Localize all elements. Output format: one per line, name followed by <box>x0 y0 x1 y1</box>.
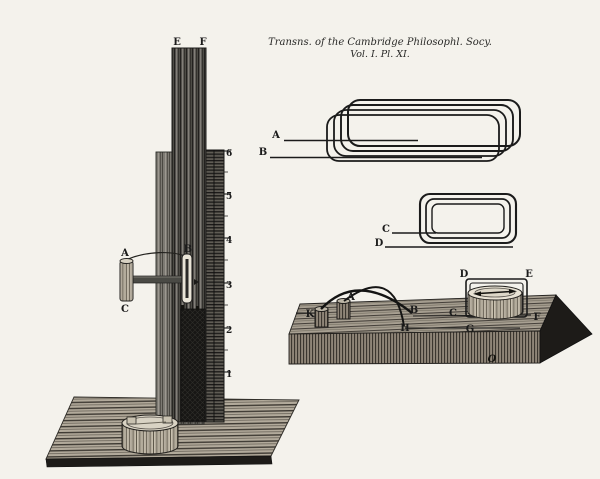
board-label-a: A <box>346 292 355 303</box>
scale-number-5: 5 <box>226 192 232 202</box>
board-label-o: O <box>488 354 497 365</box>
board-front-face <box>289 331 540 364</box>
flat-coil-label-a: A <box>271 130 280 141</box>
board-label-c: C <box>449 308 457 319</box>
glass-tube-core <box>186 259 189 298</box>
board-label-k: K <box>306 309 315 320</box>
board-label-g: G <box>466 324 475 335</box>
scale-number-1: 1 <box>226 370 232 380</box>
scale-number-4: 4 <box>226 236 232 246</box>
caption-line1: Transns. of the Cambridge Philosophl. So… <box>268 37 492 48</box>
slider-cylinder-top <box>120 259 133 264</box>
stand-label-a: A <box>120 248 129 259</box>
stand-label-b: B <box>184 244 192 255</box>
panel-top-mark-left <box>181 305 184 309</box>
round-coil-label-d: D <box>375 238 384 249</box>
scale-number-2: 2 <box>226 326 232 336</box>
slider-cylinder <box>120 261 133 301</box>
flat-coil-label-b: B <box>259 147 267 158</box>
stand-label-f: F <box>199 37 206 48</box>
dark-hatched-panel <box>181 309 205 421</box>
round-coil-label-c: C <box>382 224 390 235</box>
caption-line2: Vol. I. Pl. XI. <box>350 49 410 60</box>
board-label-d: D <box>460 269 469 280</box>
scale-number-3: 3 <box>226 281 232 291</box>
board-label-h: H <box>400 323 409 334</box>
scale-number-6: 6 <box>226 149 232 159</box>
base-bobbin-coil <box>122 415 178 454</box>
board-label-e: E <box>525 269 533 280</box>
board-label-f: F <box>533 312 540 323</box>
bobbin-lug-left <box>127 417 136 424</box>
galvanometer-coil <box>468 286 522 319</box>
panel-top-mark-right <box>196 306 199 310</box>
engraving-plate: Transns. of the Cambridge Philosophl. So… <box>0 0 600 479</box>
stand-label-c: C <box>121 304 129 315</box>
board-label-b: B <box>410 305 418 316</box>
engraving-plate-page: Transns. of the Cambridge Philosophl. So… <box>0 0 600 479</box>
stand-label-e: E <box>173 37 181 48</box>
